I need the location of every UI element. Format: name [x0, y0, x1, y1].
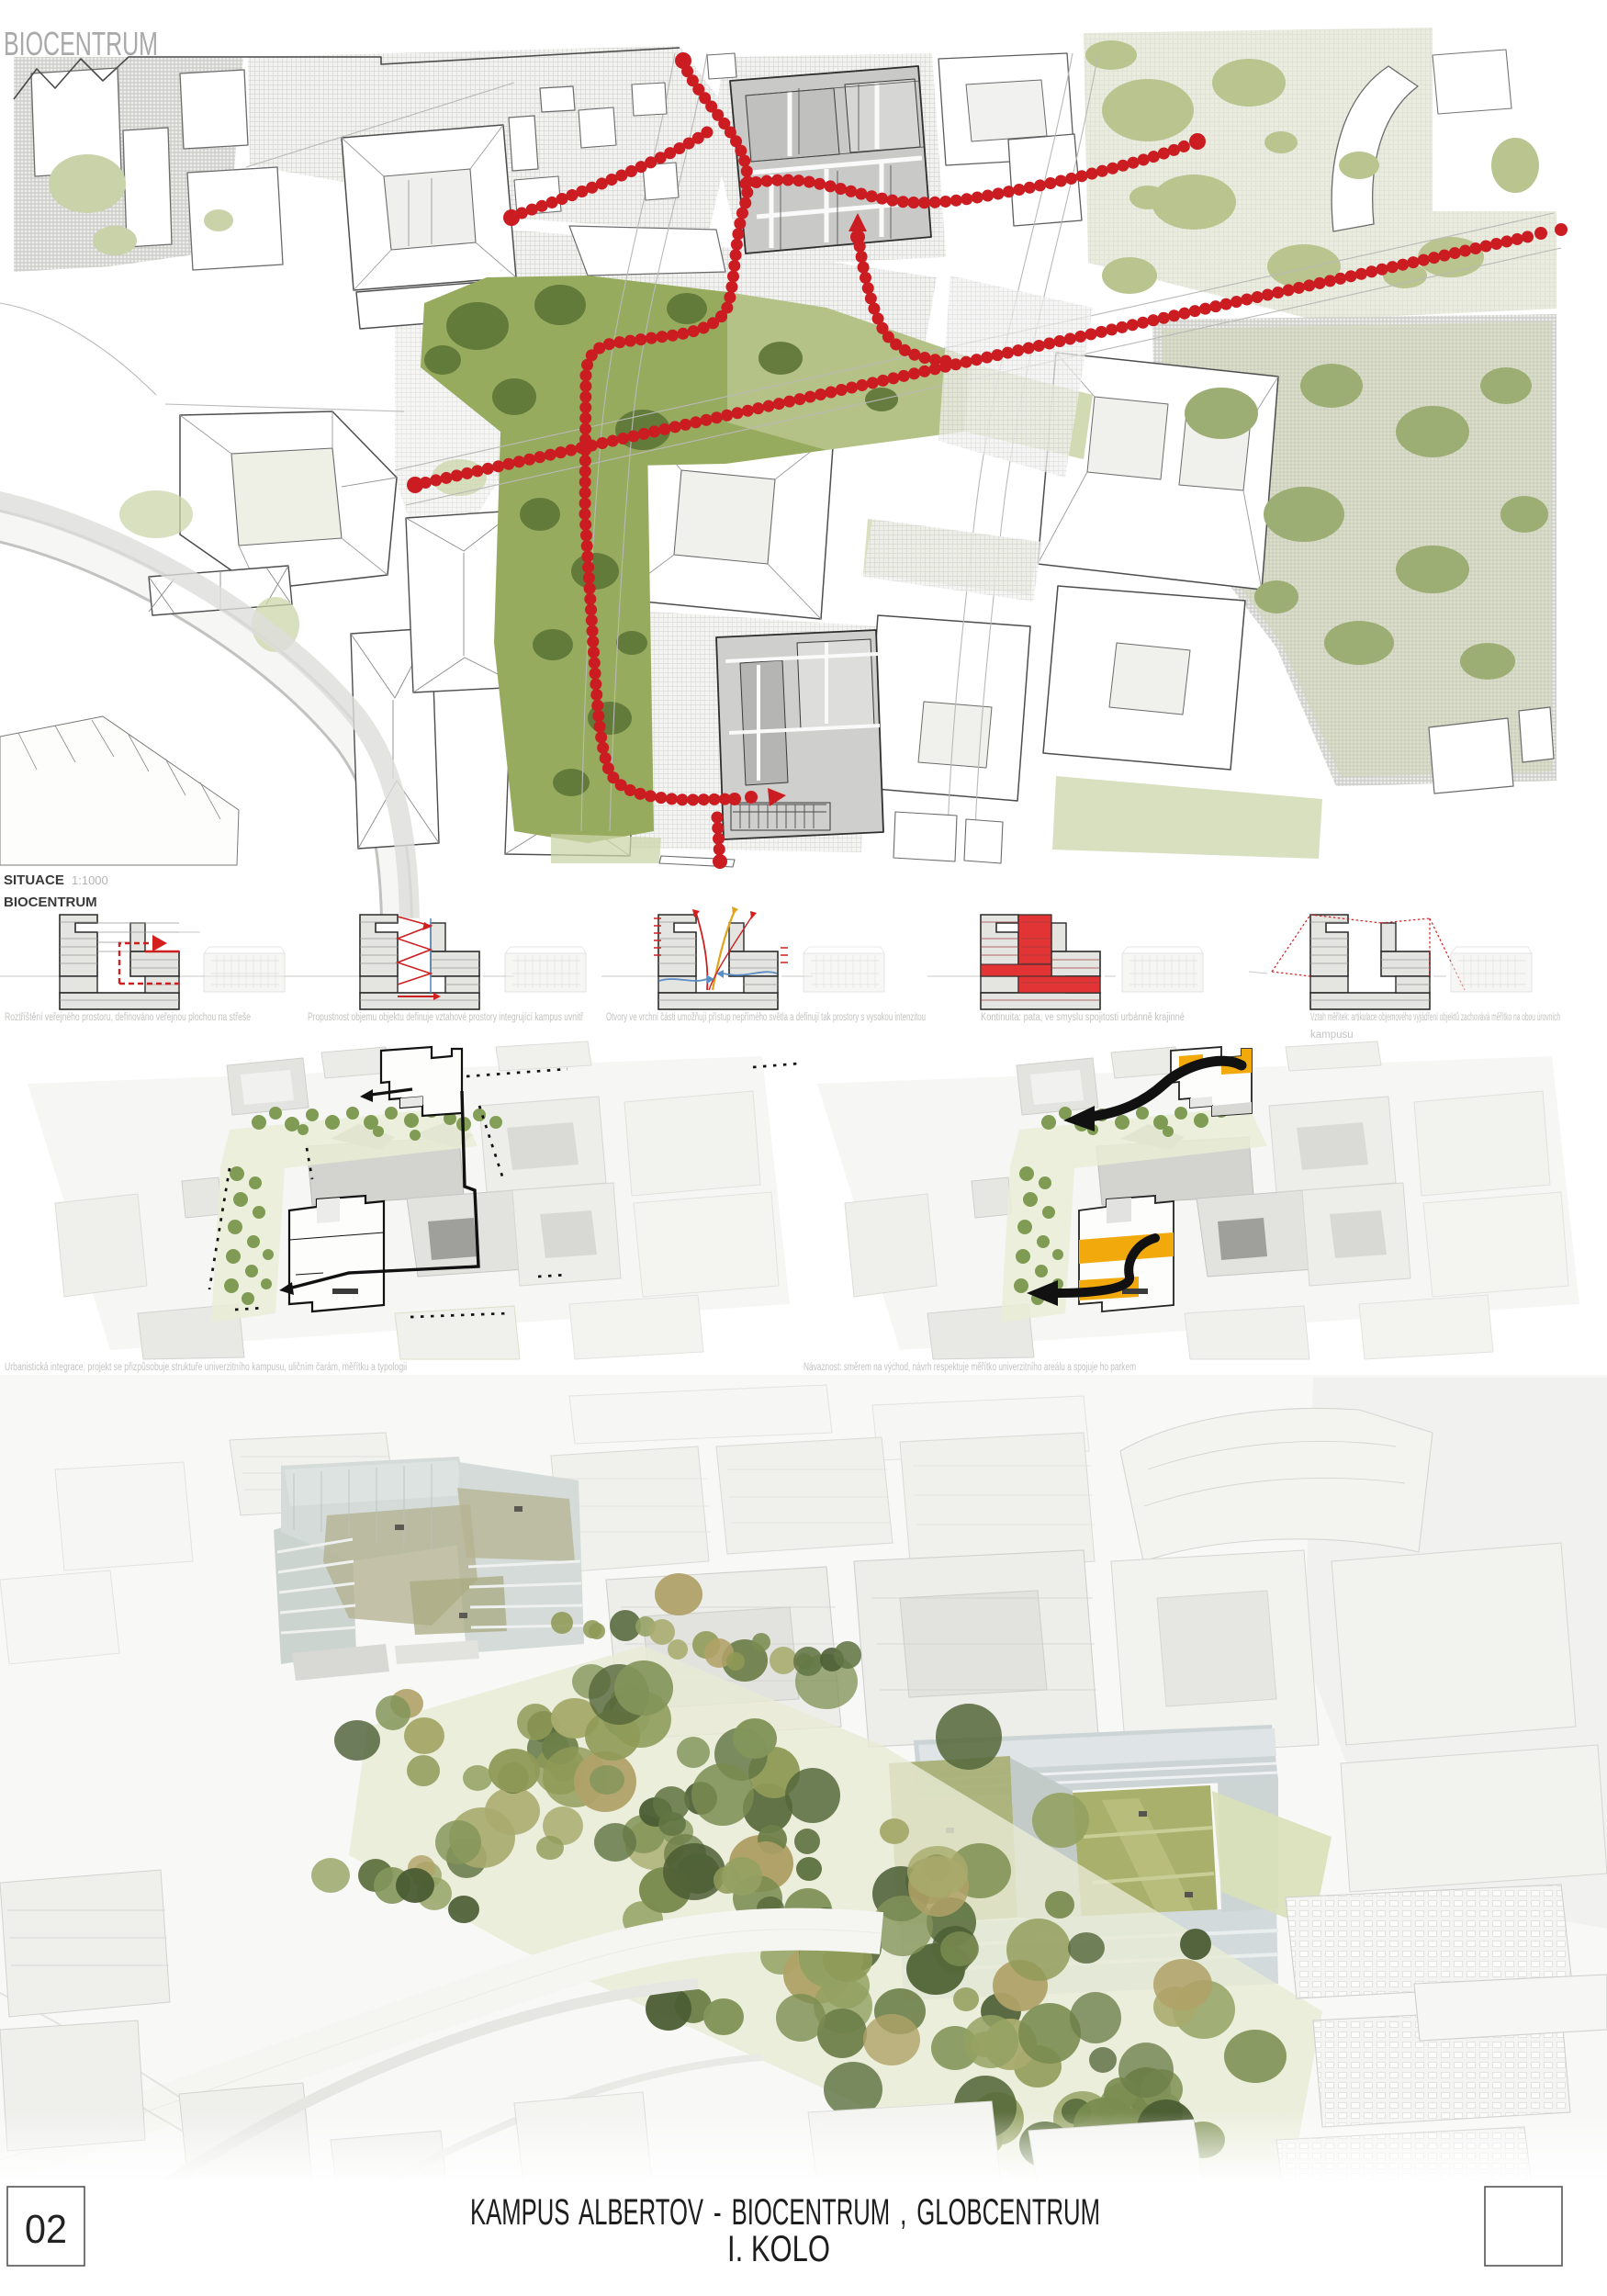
svg-text:KAMPUS ALBERTOV - BIOCENTRUM ,: KAMPUS ALBERTOV - BIOCENTRUM , GLOBCENTR… [470, 2192, 1100, 2233]
svg-text:Kontinuita: pata, ve smyslu sp: Kontinuita: pata, ve smyslu spojitosti u… [981, 1012, 1185, 1023]
svg-text:Vztah měřítek: artikulace obje: Vztah měřítek: artikulace objemového vyj… [1310, 1012, 1560, 1023]
svg-text:I. KOLO: I. KOLO [727, 2229, 830, 2269]
svg-text:Propustnost objemu objektu def: Propustnost objemu objektu definuje vzta… [308, 1012, 584, 1023]
svg-text:Urbanistická integrace, projek: Urbanistická integrace, projekt se přizp… [5, 1362, 407, 1373]
svg-text:kampusu: kampusu [1310, 1030, 1354, 1041]
svg-text:02: 02 [25, 2207, 67, 2252]
svg-text:SITUACE: SITUACE [4, 872, 64, 888]
svg-text:1:1000: 1:1000 [72, 873, 108, 887]
svg-text:Otvory ve vrchní části umožňuj: Otvory ve vrchní části umožňují přístup … [606, 1012, 926, 1023]
svg-text:Návaznost: směrem na východ, n: Návaznost: směrem na východ, návrh respe… [803, 1362, 1136, 1373]
svg-text:BIOCENTRUM: BIOCENTRUM [4, 895, 97, 910]
svg-text:Roztříštění veřejného prostoru: Roztříštění veřejného prostoru, definová… [5, 1012, 251, 1023]
